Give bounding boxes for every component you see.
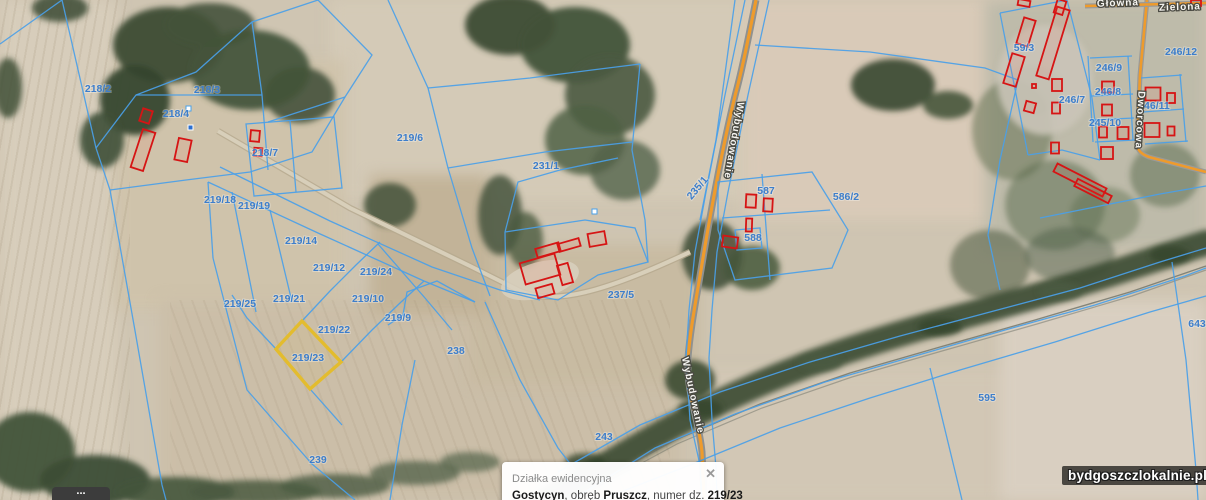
- parcel-label: 219/21: [273, 293, 305, 305]
- parcel-label: 218/4: [163, 108, 189, 120]
- parcel-label: 586/2: [833, 191, 859, 203]
- map-canvas[interactable]: 218/2218/3218/4218/7219/6219/18219/19219…: [0, 0, 1206, 500]
- parcel-label: 219/12: [313, 262, 345, 274]
- parcel-label: 587: [757, 185, 775, 197]
- watermark: bydgoszczlokalnie.pl: [1062, 466, 1206, 485]
- parcel-label: 218/2: [85, 83, 111, 95]
- parcel-info-popup: Działka ewidencyjna ✕ Gostycyn, obręb Pr…: [502, 462, 724, 500]
- parcel-label: 219/23: [292, 352, 324, 364]
- map-control-partial[interactable]: ...: [52, 487, 110, 500]
- popup-parcel-line: Gostycyn, obręb Pruszcz, numer dz. 219/2…: [512, 490, 714, 500]
- parcel-label: 219/9: [385, 312, 411, 324]
- parcel-label: 219/25: [224, 298, 256, 310]
- parcel-label: 218/3: [194, 84, 220, 96]
- parcel-label: 219/24: [360, 266, 392, 278]
- close-icon[interactable]: ✕: [705, 467, 716, 480]
- parcel-label: 219/10: [352, 293, 384, 305]
- street-label: Zielona: [1159, 1, 1201, 13]
- parcel-label: 595: [978, 392, 996, 404]
- parcel-label: 231/1: [533, 160, 559, 172]
- parcel-label: 219/18: [204, 194, 236, 206]
- parcel-label: 239: [309, 454, 327, 466]
- parcel-label: 246/9: [1096, 62, 1122, 74]
- parcel-label: 219/19: [238, 200, 270, 212]
- parcel-label: 246/12: [1165, 46, 1197, 58]
- parcel-label: 219/22: [318, 324, 350, 336]
- parcel-label: 238: [447, 345, 465, 357]
- parcel-label: 246/7: [1059, 94, 1085, 106]
- parcel-label: 59/3: [1014, 42, 1035, 54]
- parcel-label: 243: [595, 431, 613, 443]
- parcel-label: 219/14: [285, 235, 317, 247]
- parcel-label: 237/5: [608, 289, 634, 301]
- parcel-label: 245/10: [1089, 117, 1121, 129]
- parcel-label: 219/6: [397, 132, 423, 144]
- parcel-label: 246/8: [1095, 86, 1121, 98]
- popup-title: Działka ewidencyjna: [512, 473, 612, 485]
- parcel-label: 588: [744, 232, 762, 244]
- parcel-label: 218/7: [252, 147, 278, 159]
- street-label: Dworcowa: [1132, 91, 1146, 150]
- street-label: Główna: [1097, 0, 1139, 10]
- parcel-label: 643: [1188, 318, 1206, 330]
